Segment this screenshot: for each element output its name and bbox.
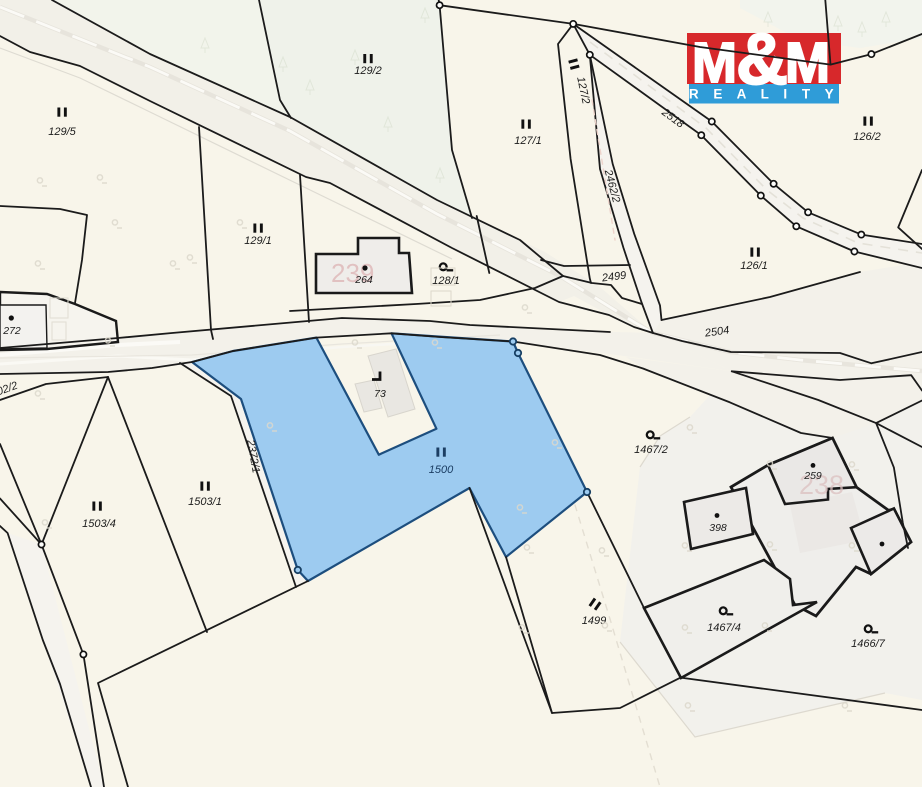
svg-text:398: 398 xyxy=(709,522,727,534)
svg-text:272: 272 xyxy=(2,325,21,337)
svg-text:1467/2: 1467/2 xyxy=(634,444,668,456)
svg-text:129/1: 129/1 xyxy=(244,235,272,247)
svg-text:126/2: 126/2 xyxy=(853,131,881,143)
svg-text:129/5: 129/5 xyxy=(48,126,76,138)
svg-text:1503/1: 1503/1 xyxy=(188,496,222,508)
svg-text:M: M xyxy=(692,31,737,95)
svg-text:R E A L I T Y: R E A L I T Y xyxy=(689,87,839,102)
svg-text:259: 259 xyxy=(803,470,822,482)
svg-text:129/2: 129/2 xyxy=(354,65,382,77)
svg-text:264: 264 xyxy=(354,274,373,286)
svg-text:1500: 1500 xyxy=(429,464,454,476)
svg-text:127/1: 127/1 xyxy=(514,135,542,147)
svg-text:126/1: 126/1 xyxy=(740,260,768,272)
svg-text:1467/4: 1467/4 xyxy=(707,622,741,634)
svg-text:1466/7: 1466/7 xyxy=(851,638,886,650)
svg-text:1503/4: 1503/4 xyxy=(82,518,116,530)
svg-text:73: 73 xyxy=(374,388,386,400)
